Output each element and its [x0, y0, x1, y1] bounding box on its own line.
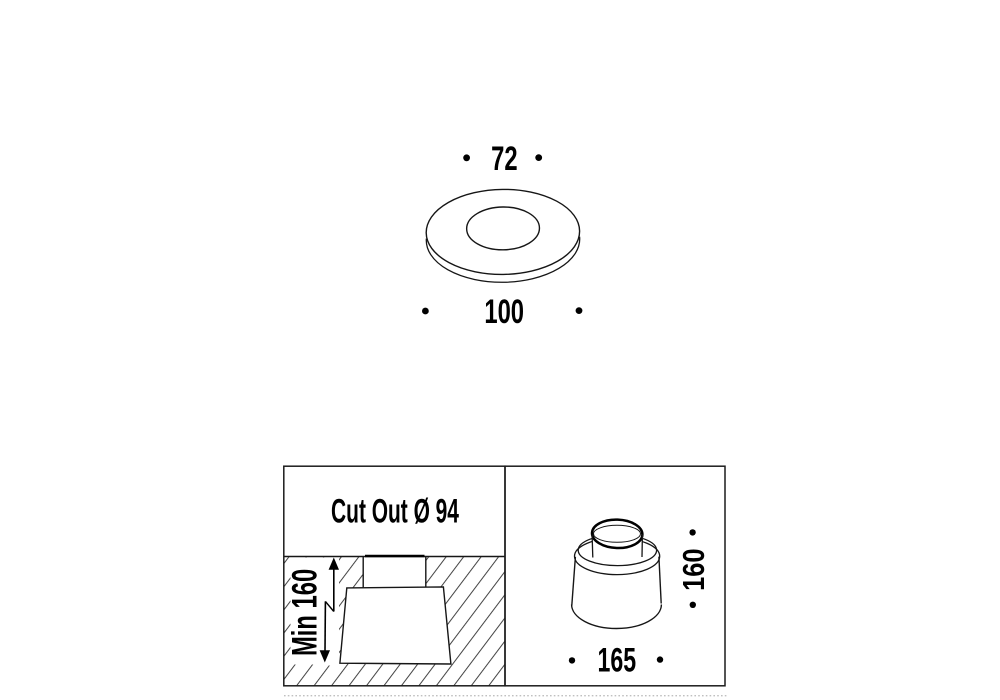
svg-text:100: 100 — [484, 293, 524, 331]
svg-text:160: 160 — [677, 549, 712, 591]
svg-text:72: 72 — [491, 140, 517, 178]
svg-text:Min 160: Min 160 — [286, 569, 325, 656]
svg-text:165: 165 — [598, 642, 637, 679]
svg-text:Cut Out Ø 94: Cut Out Ø 94 — [331, 492, 459, 531]
